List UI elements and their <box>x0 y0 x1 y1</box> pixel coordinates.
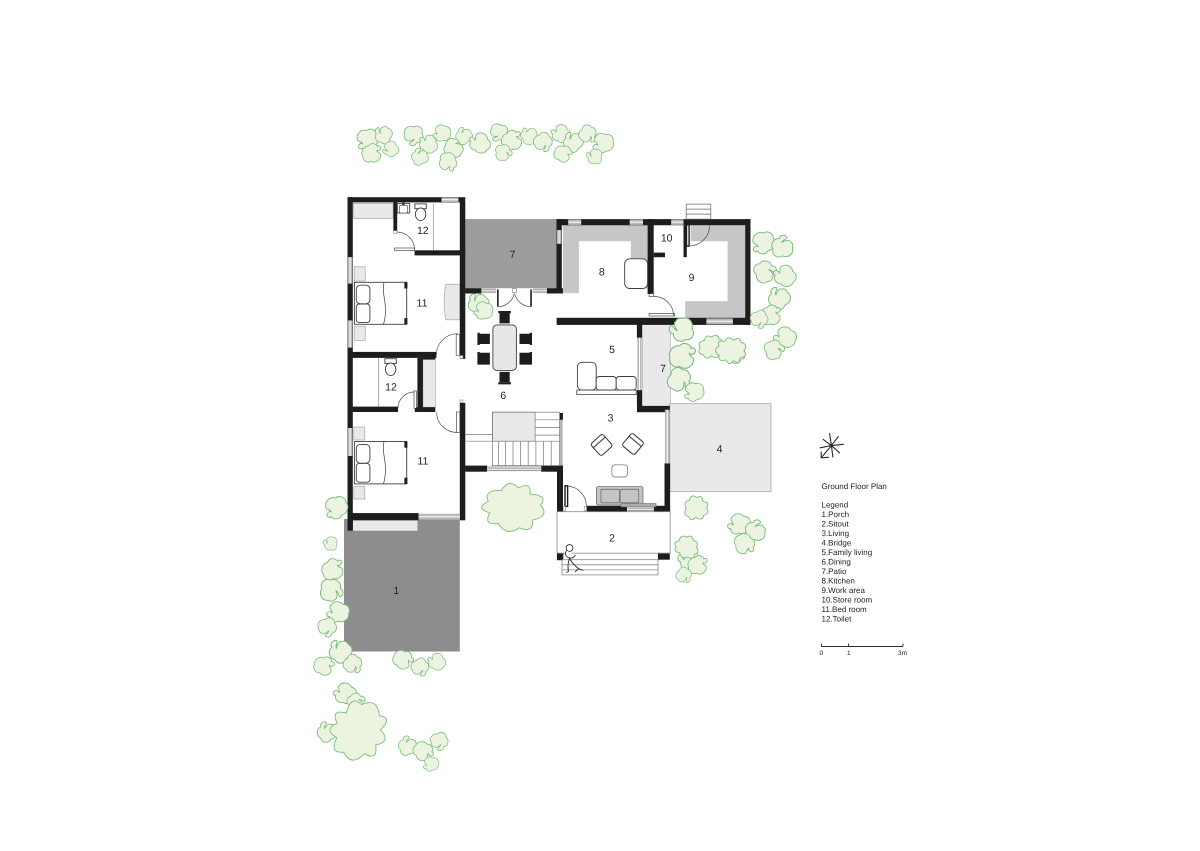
svg-text:7: 7 <box>660 363 666 375</box>
svg-text:0: 0 <box>820 650 824 657</box>
svg-text:11: 11 <box>417 456 428 468</box>
svg-text:3m: 3m <box>898 650 907 657</box>
svg-text:8.Kitchen: 8.Kitchen <box>822 577 855 586</box>
svg-text:2.Sitout: 2.Sitout <box>822 520 850 529</box>
svg-text:7: 7 <box>510 249 516 261</box>
svg-text:12: 12 <box>385 382 397 394</box>
svg-text:6.Dining: 6.Dining <box>822 558 851 567</box>
svg-text:1: 1 <box>847 650 851 657</box>
svg-text:11.Bed room: 11.Bed room <box>822 605 868 614</box>
svg-text:10: 10 <box>661 233 673 245</box>
svg-text:10.Store room: 10.Store room <box>822 596 873 605</box>
svg-text:7.Patio: 7.Patio <box>822 567 847 576</box>
svg-text:3.Living: 3.Living <box>822 529 850 538</box>
svg-text:1: 1 <box>393 585 399 597</box>
svg-text:12.Toilet: 12.Toilet <box>822 615 853 624</box>
svg-text:Legend: Legend <box>822 501 849 510</box>
svg-text:8: 8 <box>599 267 605 279</box>
svg-text:5.Family living: 5.Family living <box>822 548 873 557</box>
svg-text:4.Bridge: 4.Bridge <box>822 539 852 548</box>
svg-text:2: 2 <box>609 533 615 545</box>
svg-text:12: 12 <box>417 225 429 237</box>
svg-text:11: 11 <box>417 297 428 309</box>
svg-text:6: 6 <box>500 390 506 402</box>
svg-text:5: 5 <box>609 344 615 356</box>
svg-text:4: 4 <box>717 444 723 456</box>
svg-text:9: 9 <box>689 272 695 284</box>
svg-text:1.Porch: 1.Porch <box>822 510 850 519</box>
svg-text:9.Work area: 9.Work area <box>822 586 866 595</box>
svg-text:3: 3 <box>608 413 614 425</box>
svg-text:Ground Floor Plan: Ground Floor Plan <box>822 482 887 491</box>
